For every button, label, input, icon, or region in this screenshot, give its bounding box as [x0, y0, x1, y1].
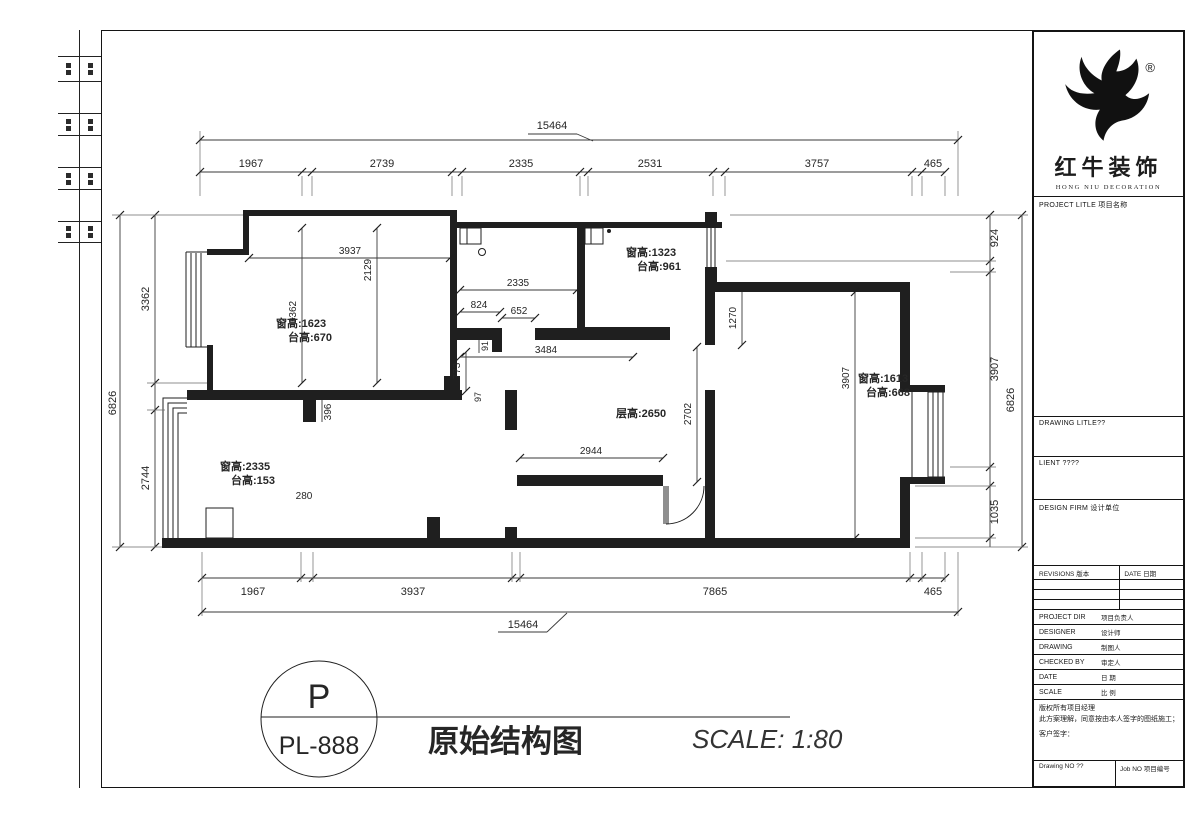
- floor-drain-icon: [479, 249, 486, 256]
- dim-left: 6826 3362 2744: [107, 211, 243, 551]
- dim-label: 2335: [507, 278, 530, 289]
- edge-cell-label: [58, 168, 101, 190]
- duct-shaft-box: [460, 228, 481, 244]
- project-title-label: PROJECT LITLE 项目名称: [1034, 197, 1183, 210]
- room-label: 台高:668: [866, 385, 910, 399]
- row-drawing: DRAWING制图人: [1034, 640, 1183, 655]
- dim-label: 3937: [401, 586, 425, 598]
- room-label: 台高:670: [288, 330, 332, 344]
- dim-label: 3484: [535, 345, 558, 356]
- pipe-dot-icon: [607, 229, 611, 233]
- room-label: 台高:153: [231, 473, 275, 487]
- dim-label: 15464: [537, 120, 568, 132]
- room-label: 窗高:1623: [276, 316, 326, 330]
- project-title-section: PROJECT LITLE 项目名称: [1034, 197, 1183, 417]
- edge-cell: [58, 30, 101, 57]
- dim-label: 465: [924, 586, 942, 598]
- title-block: ® 红牛装饰 HONG NIU DECORATION PROJECT LITLE…: [1032, 30, 1185, 788]
- row-scale: SCALE比 例: [1034, 685, 1183, 700]
- drawing-number-stamp: P PL-888: [261, 661, 790, 777]
- brand-name-en: HONG NIU DECORATION: [1056, 184, 1162, 191]
- dim-label: 1035: [989, 500, 1001, 524]
- dim-label: 3757: [805, 158, 829, 170]
- row-checked-by: CHECKED BY审定人: [1034, 655, 1183, 670]
- dim-label: 773: [452, 362, 463, 379]
- dim-bottom-segments: 1967 3937 7865 465: [198, 552, 958, 616]
- revisions-header: REVISIONS 版本 DATE 日期: [1034, 566, 1183, 580]
- room-label: 层高:2650: [615, 406, 666, 420]
- dim-top-segments: 1967 2739 2335 2531 3757 465: [196, 158, 949, 196]
- dim-label: 652: [511, 306, 528, 317]
- dim-label: 280: [296, 491, 313, 502]
- bay-window-left-lower: [163, 398, 187, 540]
- bay-window-left-upper: [186, 252, 207, 347]
- dim-interior: 3937 2129 3362 2335 824 652 3484 91 773 …: [245, 224, 859, 542]
- dim-label: 97: [473, 392, 483, 402]
- edge-cell-label: [58, 57, 101, 82]
- drawing-sheet: 15464 1967 2739 2335 2531 3757 465: [0, 0, 1200, 824]
- job-no-label: Job NO 项目编号: [1116, 761, 1183, 786]
- dim-label: 3907: [841, 366, 852, 389]
- registered-mark: ®: [1145, 60, 1155, 75]
- brand-name-cn: 红牛装饰: [1054, 150, 1162, 182]
- dim-label: 3362: [140, 287, 152, 311]
- row-date: DATE日 期: [1034, 670, 1183, 685]
- room-label: 台高:961: [637, 259, 681, 273]
- dim-label: 3937: [339, 246, 362, 257]
- design-firm-section: DESIGN FIRM 设计单位: [1034, 500, 1183, 566]
- edge-cell: [58, 82, 101, 114]
- dim-label: 1967: [239, 158, 263, 170]
- dim-label: 396: [323, 403, 334, 420]
- client-section: LIENT ????: [1034, 457, 1183, 500]
- dim-label: 2531: [638, 158, 662, 170]
- disclaimer-line: 此方案理解，同意按由本人签字的图纸施工；: [1039, 715, 1180, 726]
- sheet-edge-table: [58, 30, 102, 788]
- brand-section: ® 红牛装饰 HONG NIU DECORATION: [1034, 32, 1183, 197]
- dim-top-overall: 15464: [196, 120, 962, 196]
- revisions-label: REVISIONS 版本: [1034, 566, 1120, 579]
- room-label: 窗高:1613: [858, 371, 908, 385]
- kitchen-window: [707, 226, 715, 267]
- edge-cell-label: [58, 114, 101, 136]
- dim-label: 924: [989, 229, 1001, 247]
- row-designer: DESIGNER设计师: [1034, 625, 1183, 640]
- entry-door: [663, 486, 704, 524]
- scale-note: SCALE: 1:80: [692, 724, 843, 754]
- dim-label: 15464: [508, 619, 539, 631]
- dim-label: 1270: [728, 306, 739, 329]
- edge-cell: [58, 190, 101, 222]
- stamp-letter: P: [308, 678, 331, 716]
- revision-row: [1034, 590, 1183, 600]
- row-project-dir: PROJECT DIR项目负责人: [1034, 610, 1183, 625]
- dim-label: 2702: [683, 402, 694, 425]
- customer-signature-label: 客户签字：: [1039, 730, 1180, 741]
- dim-label: 7865: [703, 586, 727, 598]
- titleblock-footer: Drawing NO ?? Job NO 项目编号: [1034, 761, 1183, 786]
- room-label: 窗高:1323: [626, 245, 676, 259]
- dim-label: 6826: [107, 391, 119, 415]
- dim-label: 2739: [370, 158, 394, 170]
- dim-label: 2944: [580, 446, 603, 457]
- logo-bull-icon: [1061, 44, 1157, 148]
- edge-cell-label: [58, 222, 101, 243]
- dim-label: 91: [480, 341, 490, 351]
- dim-bottom-overall: 15464: [198, 608, 962, 632]
- revision-row: [1034, 600, 1183, 610]
- floor-plan-drawing: 15464 1967 2739 2335 2531 3757 465: [102, 30, 1032, 790]
- drawing-title-section: DRAWING LITLE??: [1034, 417, 1183, 457]
- design-firm-label: DESIGN FIRM 设计单位: [1034, 500, 1183, 513]
- dim-label: 3907: [989, 357, 1001, 381]
- drawing-no-label: Drawing NO ??: [1034, 761, 1116, 786]
- revision-row: [1034, 580, 1183, 590]
- dim-label: 824: [471, 300, 488, 311]
- dim-label: 2335: [509, 158, 533, 170]
- revisions-date-label: DATE 日期: [1120, 566, 1183, 579]
- dim-label: 1967: [241, 586, 265, 598]
- disclaimer-line: 版权所有项目经理: [1039, 704, 1180, 715]
- edge-cell: [58, 243, 101, 788]
- dim-label: 6826: [1005, 388, 1017, 412]
- drawing-title: 原始结构图: [428, 724, 583, 759]
- flue-box: [585, 228, 603, 244]
- disclaimer-block: 版权所有项目经理 此方案理解，同意按由本人签字的图纸施工； 客户签字：: [1034, 700, 1183, 761]
- dim-label: 465: [924, 158, 942, 170]
- stamp-number: PL-888: [279, 732, 360, 760]
- dim-label: 2129: [363, 258, 374, 281]
- room-labels: 窗高:1623 台高:670 窗高:1323 台高:961 窗高:1613 台高…: [220, 245, 910, 487]
- column-box: [206, 508, 233, 538]
- bay-window-right: [912, 392, 945, 477]
- edge-cell: [58, 136, 101, 168]
- client-label: LIENT ????: [1034, 457, 1183, 467]
- room-label: 窗高:2335: [220, 459, 270, 473]
- drawing-title-label: DRAWING LITLE??: [1034, 417, 1183, 427]
- dim-label: 2744: [140, 466, 152, 490]
